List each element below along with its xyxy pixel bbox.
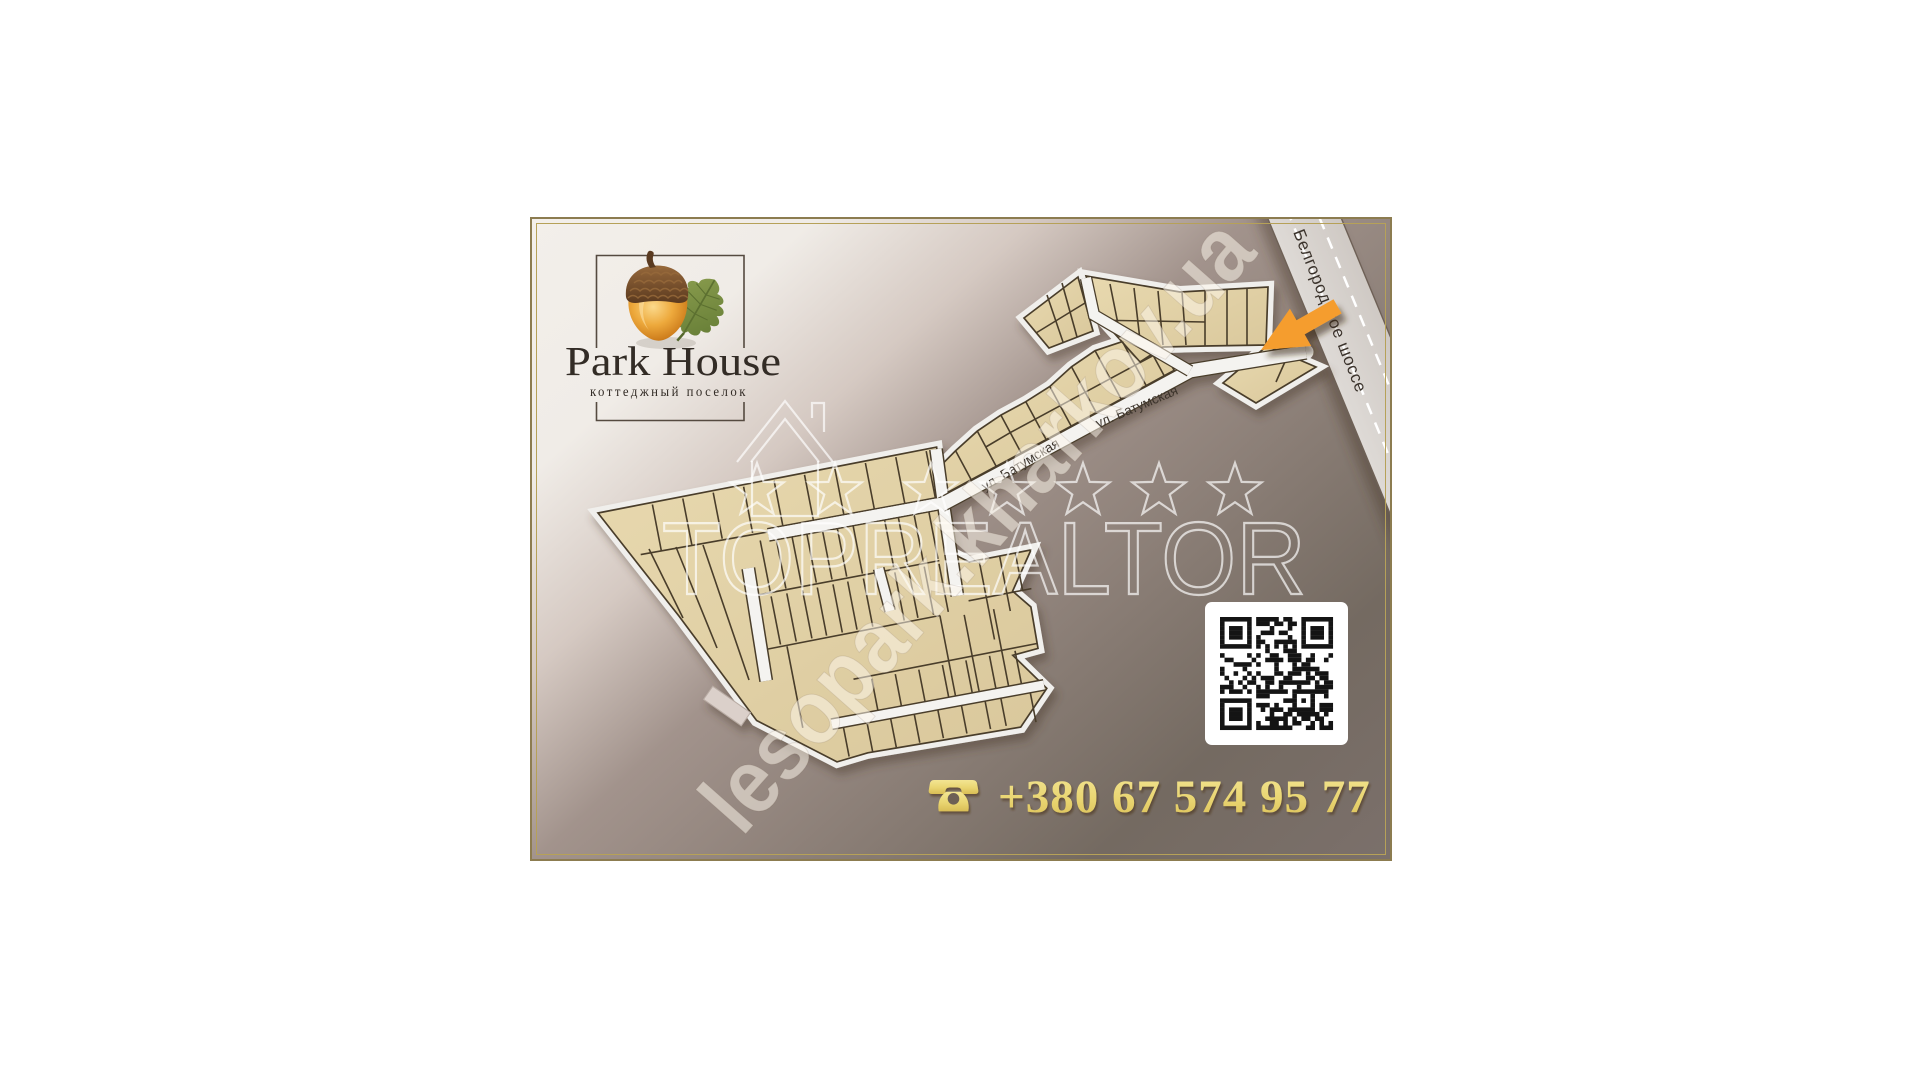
svg-text:+380 67 574 95 77: +380 67 574 95 77 xyxy=(998,771,1371,823)
svg-text:Park House: Park House xyxy=(565,338,781,384)
svg-text:коттеджный поселок: коттеджный поселок xyxy=(590,384,748,399)
